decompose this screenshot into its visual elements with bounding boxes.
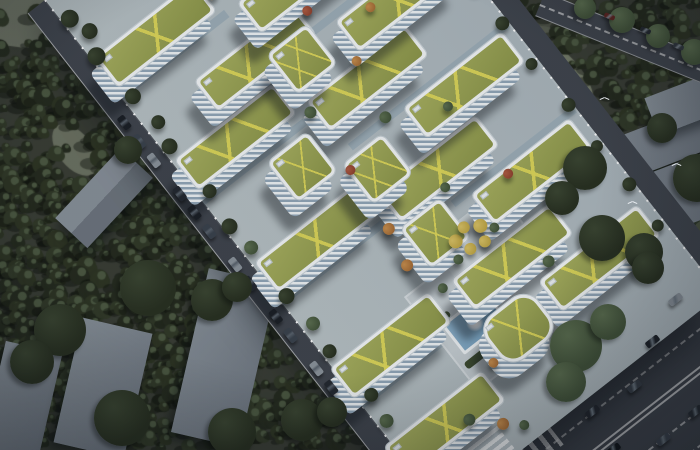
bird <box>628 200 637 205</box>
tree-cluster <box>681 39 700 65</box>
tree-cluster <box>646 24 670 48</box>
tree-cluster <box>546 362 586 402</box>
tree-cluster <box>10 340 54 384</box>
tree-cluster <box>590 304 626 340</box>
tree-cluster <box>120 260 176 316</box>
tree-cluster <box>545 181 579 215</box>
tree-cluster <box>114 136 142 164</box>
tree-cluster <box>281 399 323 441</box>
bird <box>672 162 681 167</box>
tree-cluster <box>208 408 256 450</box>
aerial-render-stage <box>0 0 700 450</box>
tree-cluster <box>317 397 347 427</box>
tree-cluster <box>647 113 677 143</box>
tree-cluster <box>632 252 664 284</box>
tree-cluster <box>579 215 625 261</box>
tree-cluster <box>94 390 150 446</box>
tree-cluster <box>222 272 252 302</box>
bird <box>600 96 609 101</box>
